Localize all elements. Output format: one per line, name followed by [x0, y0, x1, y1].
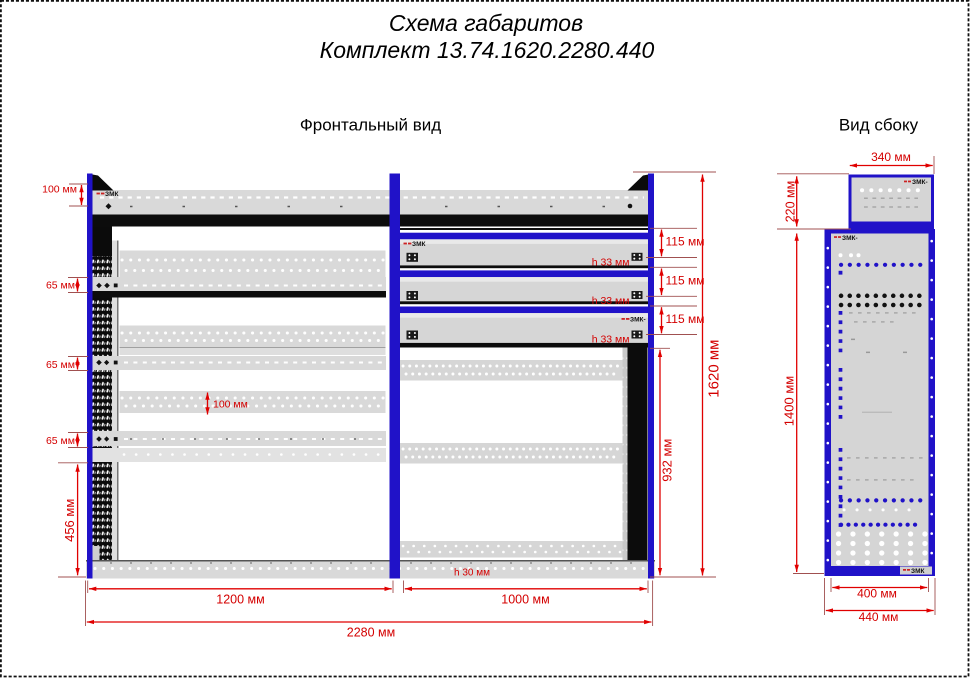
- svg-text:Вид сбоку: Вид сбоку: [839, 116, 919, 135]
- svg-text:ЗМК-: ЗМК-: [912, 179, 928, 186]
- svg-text:h 33 мм: h 33 мм: [592, 334, 630, 346]
- svg-text:Комплект 13.74.1620.2280.440: Комплект 13.74.1620.2280.440: [320, 37, 655, 63]
- svg-text:456 мм: 456 мм: [62, 499, 77, 542]
- svg-text:400 мм: 400 мм: [857, 587, 897, 601]
- svg-text:h 33 мм: h 33 мм: [592, 295, 630, 307]
- svg-text:h 30 мм: h 30 мм: [454, 568, 490, 579]
- svg-text:h 33 мм: h 33 мм: [592, 257, 630, 269]
- svg-text:ЗМК: ЗМК: [412, 241, 425, 248]
- svg-text:440 мм: 440 мм: [859, 610, 899, 624]
- svg-text:65 мм: 65 мм: [46, 359, 75, 371]
- svg-text:100 мм: 100 мм: [42, 184, 77, 196]
- svg-text:1400 мм: 1400 мм: [782, 376, 797, 426]
- svg-text:932 мм: 932 мм: [660, 439, 675, 482]
- svg-text:115 мм: 115 мм: [666, 273, 705, 287]
- svg-text:1200 мм: 1200 мм: [216, 593, 264, 607]
- svg-text:ЗМК: ЗМК: [105, 191, 118, 198]
- svg-text:Схема габаритов: Схема габаритов: [389, 10, 583, 36]
- svg-text:1000 мм: 1000 мм: [501, 593, 549, 607]
- svg-text:ЗМК-: ЗМК-: [630, 317, 646, 324]
- svg-text:ЗМК-: ЗМК-: [842, 235, 858, 242]
- svg-text:115 мм: 115 мм: [666, 235, 705, 249]
- svg-text:Фронтальный вид: Фронтальный вид: [300, 116, 441, 135]
- svg-text:340 мм: 340 мм: [871, 150, 911, 164]
- svg-text:2280 мм: 2280 мм: [347, 626, 395, 640]
- svg-text:100 мм: 100 мм: [213, 399, 248, 411]
- svg-text:65 мм: 65 мм: [46, 280, 75, 292]
- svg-text:1620 мм: 1620 мм: [706, 340, 723, 398]
- svg-text:115 мм: 115 мм: [666, 312, 705, 326]
- svg-text:65 мм: 65 мм: [46, 435, 75, 447]
- svg-text:220 мм: 220 мм: [783, 181, 797, 223]
- svg-text:ЗМК: ЗМК: [911, 568, 924, 575]
